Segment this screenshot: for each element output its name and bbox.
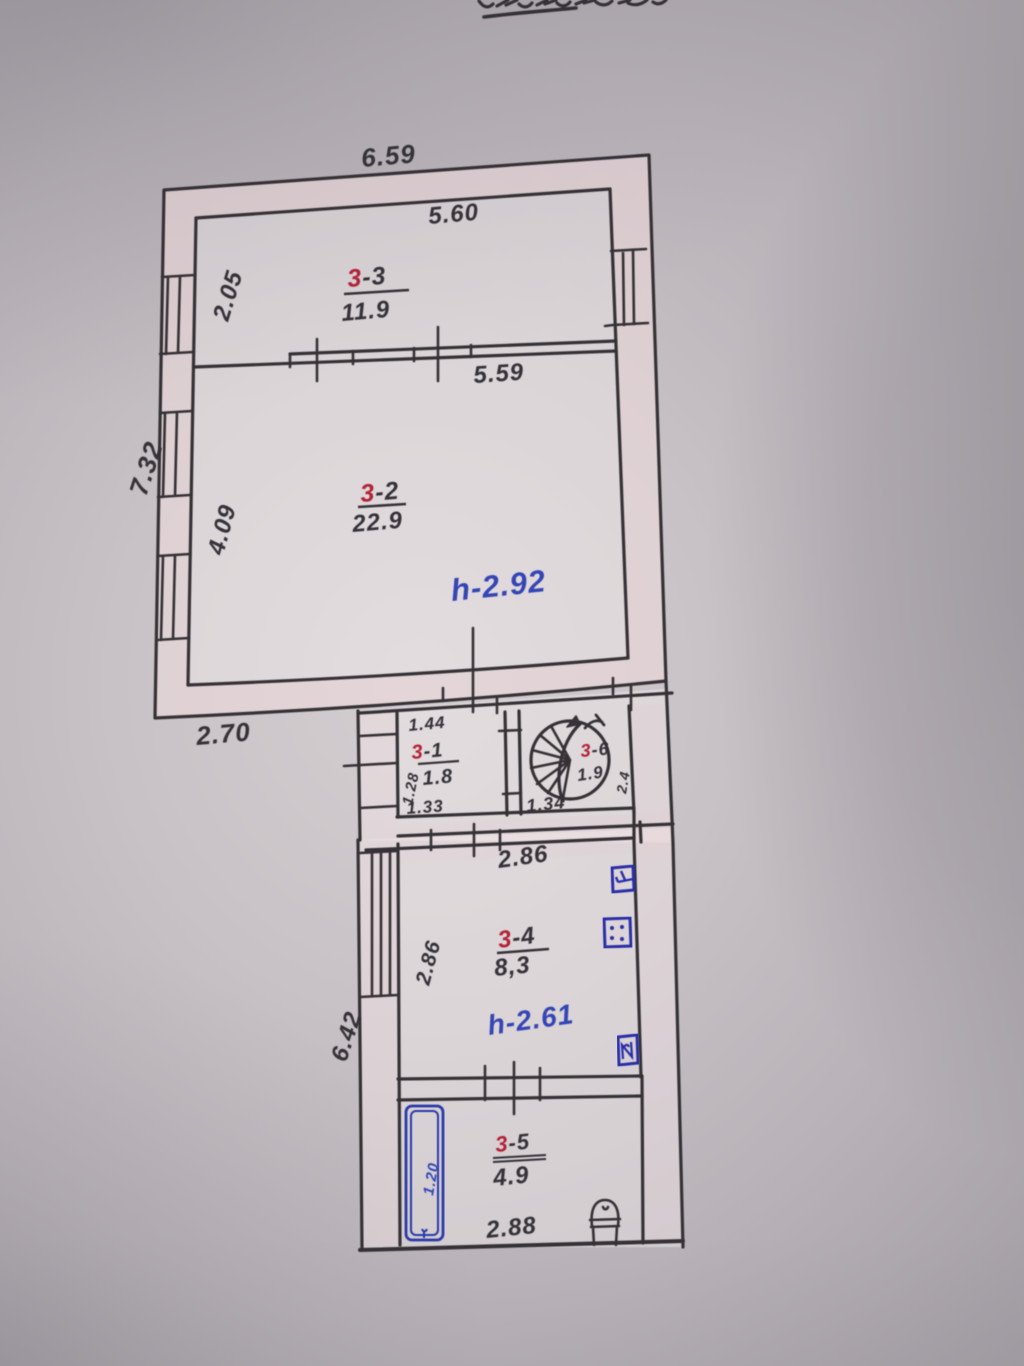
svg-text:6.59: 6.59 [360,138,417,173]
svg-text:3-6: 3-6 [580,739,611,761]
svg-text:4.9: 4.9 [491,1161,531,1192]
svg-text:1.34: 1.34 [525,792,566,816]
svg-text:5.60: 5.60 [427,199,480,230]
svg-text:1.44: 1.44 [408,713,447,735]
svg-text:1.9: 1.9 [576,762,605,785]
svg-text:8,3: 8,3 [493,951,532,982]
svg-text:11.9: 11.9 [340,296,391,327]
svg-text:3-2: 3-2 [359,477,400,508]
svg-text:1.33: 1.33 [406,796,444,818]
svg-text:3-4: 3-4 [496,922,537,954]
svg-text:3-3: 3-3 [346,262,387,293]
svg-text:5.59: 5.59 [473,359,525,389]
svg-text:3-5: 3-5 [494,1128,531,1157]
svg-text:1.8: 1.8 [422,765,455,790]
svg-text:2.70: 2.70 [194,716,252,751]
svg-text:3-1: 3-1 [411,739,445,764]
svg-text:22.9: 22.9 [350,507,404,538]
svg-text:2.88: 2.88 [484,1212,538,1244]
